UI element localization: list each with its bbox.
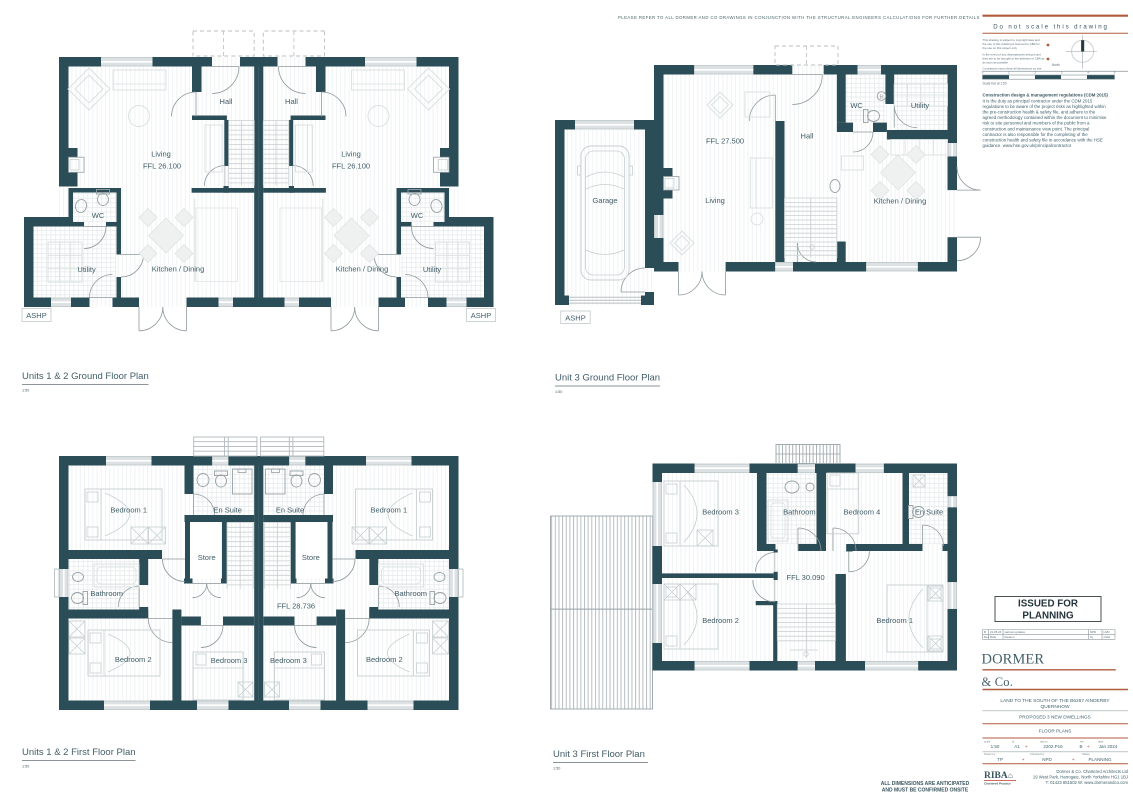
svg-text:ASHP: ASHP	[471, 311, 491, 320]
svg-text:construction health and safety: construction health and safety file in a…	[983, 138, 1103, 143]
svg-text:ASHP: ASHP	[26, 311, 46, 320]
svg-text:Living: Living	[341, 150, 361, 159]
svg-text:Utility: Utility	[423, 265, 442, 274]
svg-text:Hall: Hall	[220, 97, 233, 106]
svg-text:Bathroom: Bathroom	[395, 589, 428, 598]
svg-text:FFL 27.500: FFL 27.500	[706, 137, 744, 146]
svg-text:Jan 2024: Jan 2024	[1099, 744, 1118, 749]
svg-text:guidance. www.hse.gov.uk/princ: guidance. www.hse.gov.uk/principalcontra…	[983, 143, 1072, 148]
svg-text:Scale bar at 1:50: Scale bar at 1:50	[983, 82, 1007, 86]
svg-text:FLOOR PLANS: FLOOR PLANS	[1039, 729, 1072, 734]
svg-text:Kitchen / Dining: Kitchen / Dining	[336, 265, 389, 274]
svg-text:Bedroom 3: Bedroom 3	[702, 508, 739, 517]
svg-text:the pre-construction health &: the pre-construction health & safety fil…	[983, 110, 1096, 115]
svg-text:1:50: 1:50	[22, 765, 29, 769]
svg-text:FFL 26.100: FFL 26.100	[143, 162, 181, 171]
svg-text:contractor is also responsible: contractor is also responsible for the c…	[983, 132, 1089, 137]
svg-text:Drawn by: Drawn by	[984, 752, 996, 756]
svg-text:B: B	[880, 94, 884, 100]
svg-text:Construction design & manageme: Construction design & management regulat…	[983, 93, 1109, 98]
svg-text:Unit 3 First Floor Plan: Unit 3 First Floor Plan	[553, 749, 645, 760]
svg-text:drg no: drg no	[1040, 739, 1048, 743]
svg-text:TP: TP	[997, 757, 1003, 762]
svg-text:agreed methodology contained w: agreed methodology contained within the …	[983, 115, 1108, 120]
svg-text:LAND TO THE SOUTH OF THE B6267: LAND TO THE SOUTH OF THE B6267 AINDERBY	[1000, 698, 1110, 704]
svg-text:Unit 3 Ground Floor Plan: Unit 3 Ground Floor Plan	[555, 373, 660, 384]
svg-text:FFL 28.736: FFL 28.736	[277, 602, 315, 611]
svg-text:Status: Status	[1082, 752, 1090, 756]
svg-text:It is the duty as principal co: It is the duty as principal contractor u…	[983, 98, 1093, 103]
svg-text:WC: WC	[850, 101, 863, 110]
svg-text:Kitchen / Dining: Kitchen / Dining	[152, 265, 205, 274]
svg-text:En Suite: En Suite	[214, 506, 242, 515]
svg-text:Bedroom 1: Bedroom 1	[370, 506, 407, 515]
svg-text:ALL DIMENSIONS ARE ANTICIPATED: ALL DIMENSIONS ARE ANTICIPATED	[881, 781, 970, 787]
svg-text:En Suite: En Suite	[915, 508, 943, 517]
svg-text:Chkd: Chkd	[1104, 635, 1111, 639]
svg-text:RIBA: RIBA	[984, 771, 1008, 781]
svg-text:Store: Store	[198, 553, 216, 562]
svg-text:as soon as possible: as soon as possible	[983, 61, 1009, 65]
svg-text:Kitchen / Dining: Kitchen / Dining	[874, 197, 927, 206]
svg-text:Garage: Garage	[592, 196, 617, 205]
svg-text:construction and maintenance v: construction and maintenance view point.…	[983, 126, 1090, 131]
svg-text:1:50: 1:50	[555, 390, 562, 394]
svg-text:scale: scale	[984, 739, 991, 743]
svg-text:Bedroom 2: Bedroom 2	[702, 616, 739, 625]
svg-text:PLANNING: PLANNING	[1022, 611, 1074, 622]
svg-text:QUERNHOW: QUERNHOW	[1040, 704, 1070, 710]
svg-text:Store: Store	[302, 553, 320, 562]
svg-text:ASHP: ASHP	[565, 313, 585, 322]
svg-text:Bathroom: Bathroom	[783, 508, 816, 517]
svg-text:regulations to be aware of the: regulations to be aware of the project r…	[983, 104, 1107, 109]
svg-text:Bedroom 1: Bedroom 1	[110, 506, 147, 515]
svg-text:Units 1 & 2 First Floor Plan: Units 1 & 2 First Floor Plan	[22, 747, 136, 758]
svg-text:Reason: Reason	[1005, 635, 1015, 639]
svg-text:1:50: 1:50	[22, 389, 29, 393]
svg-text:the use on this project only: the use on this project only	[983, 46, 1018, 50]
svg-text:Contractors must check all dim: Contractors must check all dimensions on…	[983, 67, 1042, 71]
svg-text:Units 1 & 2 Ground Floor Plan: Units 1 & 2 Ground Floor Plan	[22, 371, 149, 382]
svg-text:NPD: NPD	[1042, 757, 1052, 762]
svg-text:Bedroom 3: Bedroom 3	[270, 656, 307, 665]
svg-text:Living: Living	[705, 196, 725, 205]
svg-text:Bedroom 3: Bedroom 3	[211, 656, 248, 665]
svg-text:Bathroom: Bathroom	[90, 589, 123, 598]
svg-text:A1: A1	[1014, 744, 1020, 749]
svg-text:Bedroom 4: Bedroom 4	[844, 508, 881, 517]
svg-text:B: B	[1079, 744, 1082, 749]
svg-text:PLEASE REFER TO ALL DORMER AND: PLEASE REFER TO ALL DORMER AND CO DRAWIN…	[618, 15, 980, 20]
svg-text:PLANNING: PLANNING	[1088, 757, 1112, 762]
svg-text:⌂: ⌂	[1008, 771, 1013, 780]
svg-text:21.05.24: 21.05.24	[990, 630, 1002, 634]
svg-text:HVD: HVD	[1104, 630, 1110, 634]
svg-text:risk to site personnel and mem: risk to site personnel and members of th…	[983, 121, 1090, 126]
svg-text:1:50: 1:50	[991, 744, 1000, 749]
svg-text:Bedroom 2: Bedroom 2	[115, 655, 152, 664]
svg-text:Living: Living	[151, 150, 171, 159]
svg-text:NPD: NPD	[1090, 630, 1096, 634]
svg-text:B: B	[984, 630, 986, 634]
svg-text:Checked by: Checked by	[1030, 752, 1045, 756]
svg-text:FFL 30.090: FFL 30.090	[787, 573, 825, 582]
svg-text:Bedroom 2: Bedroom 2	[366, 655, 403, 664]
svg-text:date: date	[1098, 739, 1104, 743]
svg-text:WC: WC	[92, 211, 105, 220]
svg-text:ISSUED FOR: ISSUED FOR	[1018, 599, 1078, 610]
svg-text:North: North	[1052, 63, 1060, 67]
svg-text:at: at	[1012, 739, 1014, 743]
svg-text:Bedroom 1: Bedroom 1	[876, 616, 913, 625]
svg-text:Date: Date	[990, 635, 996, 639]
svg-text:rev: rev	[1080, 739, 1084, 743]
svg-text:various updates: various updates	[1005, 630, 1026, 634]
svg-text:19 West Park, Harrogate, North: 19 West Park, Harrogate, North Yorkshire…	[1033, 775, 1128, 780]
svg-text:Utility: Utility	[77, 265, 96, 274]
svg-text:FFL 26.100: FFL 26.100	[332, 162, 370, 171]
svg-text:DORMER: DORMER	[982, 652, 1045, 668]
svg-text:WC: WC	[411, 211, 424, 220]
svg-text:Hall: Hall	[285, 97, 298, 106]
svg-text:Rev: Rev	[984, 635, 990, 639]
svg-text:Utility: Utility	[911, 101, 930, 110]
svg-text:Dormer & Co. Chartered Archite: Dormer & Co. Chartered Architects Ltd	[1056, 769, 1128, 774]
svg-text:AND MUST BE CONFIRMED ONSITE: AND MUST BE CONFIRMED ONSITE	[882, 788, 969, 794]
svg-text:PROPOSED 3 NEW DWELLINGS: PROPOSED 3 NEW DWELLINGS	[1019, 715, 1091, 720]
svg-text:2202.P16: 2202.P16	[1043, 744, 1063, 749]
svg-text:& Co.: & Co.	[982, 675, 1014, 689]
svg-text:T: 01423 851502 W: www.dorm: T: 01423 851502 W: www.dormerandco.com	[1046, 780, 1129, 785]
svg-text:Hall: Hall	[801, 132, 814, 141]
svg-text:1:50: 1:50	[553, 767, 560, 771]
svg-text:En Suite: En Suite	[276, 506, 304, 515]
svg-text:Do not scale this drawing: Do not scale this drawing	[993, 24, 1109, 31]
svg-text:Chartered Practice: Chartered Practice	[984, 782, 1011, 786]
